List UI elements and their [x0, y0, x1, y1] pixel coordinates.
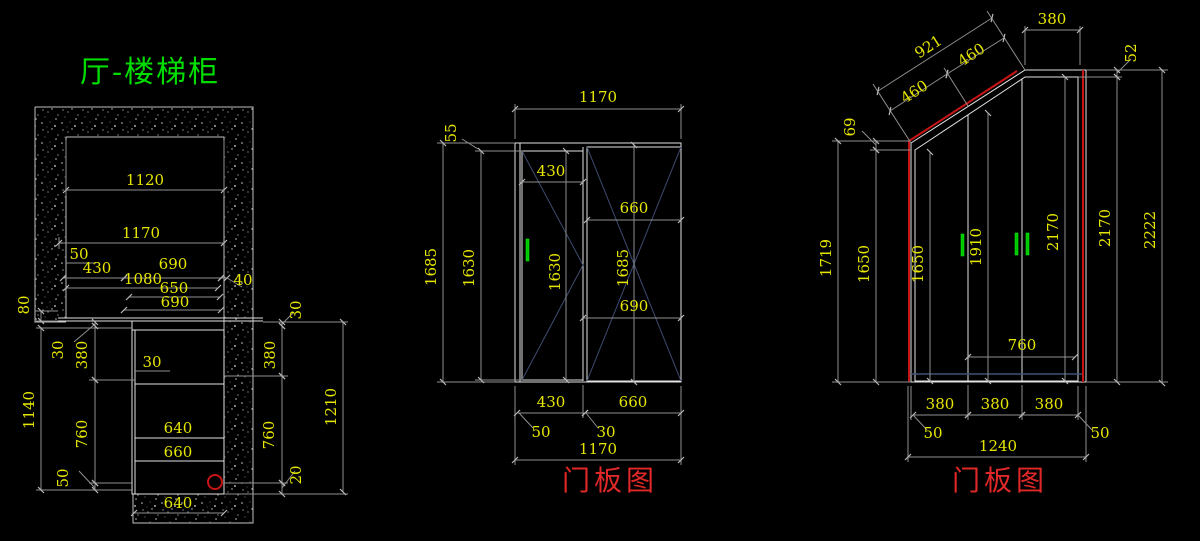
dim-label: 1170	[579, 88, 617, 106]
dim-label: 1650	[909, 245, 927, 283]
dim-label: 430	[83, 259, 112, 277]
door-panel-2-dimensions: 921 460 460 380 52 69 1719 1650 1650 191…	[817, 10, 1168, 462]
knob-circle	[208, 475, 222, 489]
dim-label: 50	[54, 468, 72, 487]
dim-label: 1719	[817, 239, 835, 277]
dim-label: 460	[954, 39, 988, 70]
dim-label: 660	[619, 393, 648, 411]
dim-label: 640	[164, 419, 193, 437]
dim-label: 660	[620, 199, 649, 217]
dim-label: 1240	[979, 437, 1017, 455]
door-handle	[1026, 233, 1029, 255]
dim-label: 430	[537, 393, 566, 411]
dim-label: 1080	[124, 270, 162, 288]
dim-label: 2170	[1096, 209, 1114, 247]
plan-view-drawing: 1120 1170 50 430 690 1080 40 650 690 80 …	[15, 107, 348, 523]
dim-label: 760	[1008, 336, 1037, 354]
dim-label: 380	[261, 341, 279, 370]
dim-label: 1685	[614, 249, 632, 287]
dim-label: 2222	[1141, 211, 1159, 249]
dim-label: 1170	[122, 224, 160, 242]
door-panel-1-drawing: 1170 55 1685 1630 430 1630 660 1685 690 …	[422, 88, 681, 497]
dim-label: 690	[159, 255, 188, 273]
dim-label: 760	[73, 420, 91, 449]
dim-label: 52	[1122, 43, 1140, 62]
door-handle	[1015, 233, 1018, 255]
door-panel-2-label: 门板图	[952, 464, 1048, 497]
dim-label: 1210	[322, 388, 340, 426]
dim-label: 1170	[579, 440, 617, 458]
door-panel-1-label: 门板图	[562, 464, 658, 497]
dim-label: 20	[287, 465, 305, 484]
dim-label: 1630	[546, 253, 564, 291]
dim-label: 1120	[126, 171, 164, 189]
door-panel-2-drawing: 921 460 460 380 52 69 1719 1650 1650 191…	[817, 10, 1168, 497]
door-handle	[961, 234, 964, 256]
dim-label: 55	[442, 123, 460, 142]
dim-label: 380	[1038, 10, 1067, 28]
dim-label: 380	[981, 395, 1010, 413]
cad-drawing-canvas[interactable]: 厅-楼梯柜	[0, 0, 1200, 541]
dim-label: 380	[1035, 395, 1064, 413]
drawing-title: 厅-楼梯柜	[80, 55, 220, 90]
dim-label: 1685	[422, 248, 440, 286]
dim-label: 50	[1090, 424, 1109, 442]
dim-label: 2170	[1044, 213, 1062, 251]
dim-label: 30	[49, 340, 67, 359]
dim-label: 1650	[855, 245, 873, 283]
dim-label: 430	[537, 162, 566, 180]
dim-label: 50	[923, 424, 942, 442]
door-panel-1-dimensions: 1170 55 1685 1630 430 1630 660 1685 690 …	[422, 88, 681, 465]
dim-label: 1630	[460, 249, 478, 287]
dim-label: 760	[260, 421, 278, 450]
dim-label: 69	[841, 117, 859, 136]
dim-label: 690	[161, 293, 190, 311]
dim-label: 30	[596, 423, 615, 441]
dim-label: 80	[15, 295, 33, 314]
dim-label: 921	[911, 31, 945, 62]
dim-label: 380	[73, 341, 91, 370]
dim-label: 30	[142, 353, 161, 371]
dim-label: 640	[164, 494, 193, 512]
dim-label: 1910	[967, 228, 985, 266]
dim-label: 690	[620, 297, 649, 315]
dim-label: 40	[233, 271, 252, 289]
door-handle	[526, 239, 529, 261]
dim-label: 380	[926, 395, 955, 413]
dim-label: 1140	[20, 391, 38, 429]
dim-label: 660	[164, 443, 193, 461]
dim-label: 30	[287, 300, 305, 319]
dim-label: 50	[531, 423, 550, 441]
cad-viewport[interactable]: 厅-楼梯柜	[0, 0, 1200, 541]
